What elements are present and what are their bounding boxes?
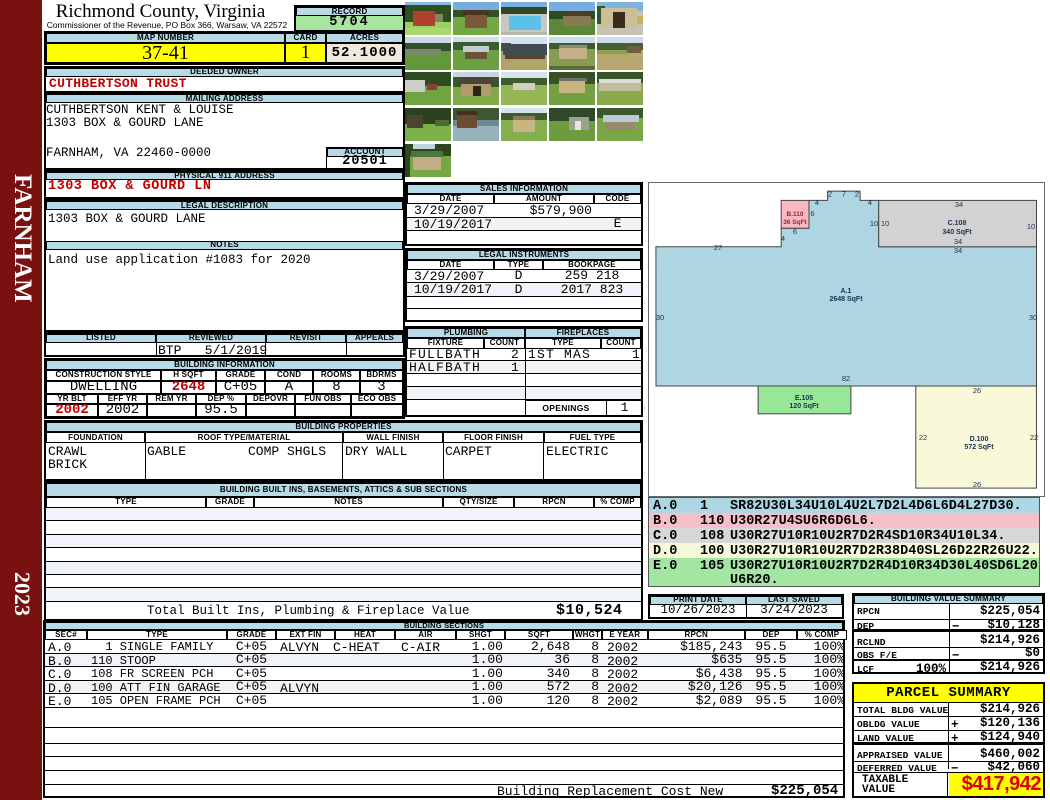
svg-text:82: 82 (842, 374, 850, 383)
svg-text:30: 30 (1029, 313, 1037, 322)
svg-text:120 SqFt: 120 SqFt (789, 403, 819, 410)
svg-text:10: 10 (881, 219, 889, 228)
svg-text:4: 4 (868, 198, 872, 207)
svg-text:6: 6 (793, 227, 797, 236)
svg-text:27: 27 (714, 243, 722, 252)
svg-text:22: 22 (919, 433, 927, 442)
svg-text:34: 34 (954, 237, 962, 246)
svg-text:2: 2 (828, 190, 832, 199)
svg-text:26: 26 (973, 386, 981, 395)
svg-text:34: 34 (955, 200, 963, 209)
svg-text:6: 6 (810, 209, 814, 218)
svg-text:A.1: A.1 (841, 288, 852, 295)
svg-text:7: 7 (842, 190, 846, 199)
svg-text:4: 4 (781, 234, 785, 243)
svg-text:22: 22 (1030, 433, 1038, 442)
svg-text:10: 10 (870, 219, 878, 228)
svg-text:2648 SqFt: 2648 SqFt (829, 296, 863, 303)
svg-text:10: 10 (1027, 222, 1035, 231)
svg-text:C.108: C.108 (948, 220, 967, 227)
svg-text:D.100: D.100 (970, 436, 989, 443)
svg-text:26: 26 (973, 480, 981, 489)
svg-text:34: 34 (954, 246, 962, 255)
svg-text:36 SqFt: 36 SqFt (783, 219, 807, 226)
svg-text:4: 4 (815, 198, 819, 207)
svg-text:340 SqFt: 340 SqFt (942, 229, 972, 236)
svg-text:2: 2 (855, 190, 859, 199)
svg-text:30: 30 (656, 313, 664, 322)
svg-text:B.110: B.110 (787, 211, 804, 218)
svg-text:572 SqFt: 572 SqFt (964, 444, 994, 451)
svg-text:E.105: E.105 (795, 395, 813, 402)
